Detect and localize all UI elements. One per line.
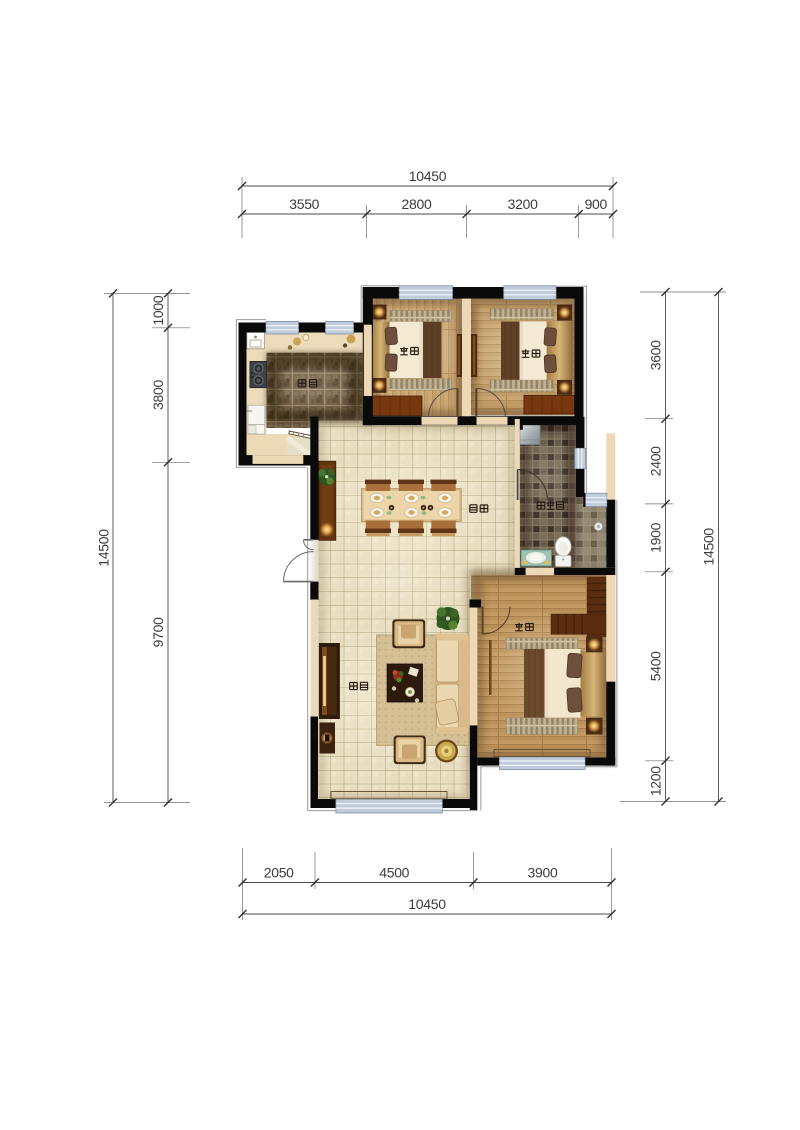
svg-text:3550: 3550 bbox=[289, 196, 319, 212]
svg-text:2400: 2400 bbox=[648, 446, 664, 476]
svg-text:3200: 3200 bbox=[508, 196, 538, 212]
svg-text:14500: 14500 bbox=[96, 529, 112, 567]
svg-text:10450: 10450 bbox=[409, 168, 447, 184]
svg-text:3600: 3600 bbox=[648, 340, 664, 370]
svg-text:4500: 4500 bbox=[379, 865, 409, 881]
svg-text:1000: 1000 bbox=[150, 295, 166, 325]
svg-text:1200: 1200 bbox=[648, 766, 664, 796]
svg-text:3900: 3900 bbox=[528, 865, 558, 881]
svg-text:9700: 9700 bbox=[150, 617, 166, 647]
svg-text:10450: 10450 bbox=[408, 896, 446, 912]
svg-text:5400: 5400 bbox=[648, 651, 664, 681]
svg-text:2050: 2050 bbox=[264, 865, 294, 881]
svg-text:3800: 3800 bbox=[150, 380, 166, 410]
svg-text:1900: 1900 bbox=[648, 522, 664, 552]
svg-text:2800: 2800 bbox=[402, 196, 432, 212]
svg-text:14500: 14500 bbox=[701, 528, 717, 566]
svg-text:900: 900 bbox=[585, 196, 608, 212]
